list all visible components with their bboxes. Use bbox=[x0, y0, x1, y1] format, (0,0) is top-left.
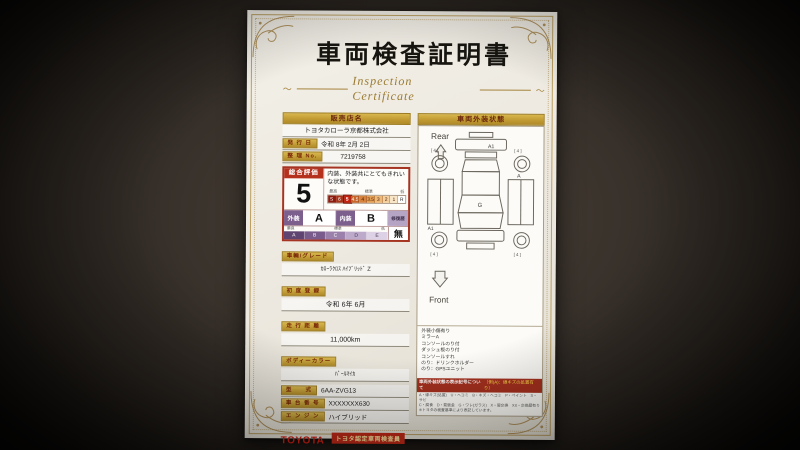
svg-text:[ 4 ]: [ 4 ] bbox=[514, 148, 521, 153]
rear-label: Rear bbox=[431, 131, 449, 141]
svg-text:A1: A1 bbox=[428, 226, 434, 232]
detail-chassis-no: 車 台 番 号 XXXXXXX630 bbox=[281, 397, 409, 411]
detail-first-registration: 初 度 登 録 令和 6年 6月 bbox=[281, 279, 409, 312]
right-column: 車両外装状態 Rear A bbox=[415, 113, 544, 450]
exterior-label: 外装 bbox=[284, 210, 303, 225]
ref-no-value: 7219758 bbox=[340, 153, 365, 160]
evaluation-scale: S 6 5 4.5 4 3.5 3 2 1 R bbox=[327, 195, 406, 204]
ornament-left: ～ bbox=[283, 82, 292, 95]
svg-text:[ 4 ]: [ 4 ] bbox=[431, 148, 438, 153]
car-diagram: Rear A1 bbox=[417, 126, 543, 326]
ref-no-label: 整 理 No. bbox=[282, 151, 322, 161]
certificate-subtitle-row: ～ Inspection Certificate ～ bbox=[283, 73, 545, 105]
repair-value: 無 bbox=[388, 227, 408, 240]
svg-text:[ 4 ]: [ 4 ] bbox=[514, 252, 521, 257]
left-column: 販売店名 トヨタカローラ京都株式会社 発 行 日 令和 8年 2月 2日 整 理… bbox=[280, 112, 410, 450]
interior-grade: B bbox=[355, 211, 388, 226]
evaluation-header: 総合評価 bbox=[284, 168, 323, 178]
grade-scale-row: 最良 標準 低 A B C D E bbox=[284, 225, 408, 240]
evaluation-comment: 内装、外装共にとてもきれいな状態です。 bbox=[327, 171, 406, 189]
exterior-panel: Rear A1 bbox=[416, 125, 545, 417]
photo-scene: 車両検査証明書 ～ Inspection Certificate ～ 販売店名 … bbox=[0, 0, 800, 450]
detail-body-color: ボディーカラー ﾊﾟｰﾙﾏｲｶ bbox=[281, 349, 409, 382]
inspector-badge: トヨタ認定車両検査員 bbox=[332, 433, 405, 444]
svg-text:A: A bbox=[517, 174, 521, 180]
legend-header-bar: 車両外装状態の表示記号について （例(A)：線キズの処置有り） bbox=[417, 378, 542, 393]
overall-evaluation-box: 総合評価 5 内装、外装共にとてもきれいな状態です。 最高 標準 低 bbox=[282, 166, 410, 242]
issue-date-label: 発 行 日 bbox=[282, 138, 317, 148]
front-label: Front bbox=[429, 295, 449, 305]
condition-notes: 外装小傷有り ミラーA コンソールのり付 ダッシュ板のり付 コンソールすれ のり… bbox=[417, 325, 542, 378]
grade-row: 外装 A 内装 B 修復歴 bbox=[284, 209, 408, 226]
dealer-header: 販売店名 bbox=[283, 112, 411, 125]
ref-no-row: 整 理 No. 7219758 bbox=[282, 150, 410, 164]
exterior-grade: A bbox=[303, 210, 336, 225]
detail-model-code: 型 式 6AA-ZVG13 bbox=[281, 384, 409, 398]
issue-date-value: 令和 8年 2月 2日 bbox=[321, 139, 370, 149]
inspection-certificate: 車両検査証明書 ～ Inspection Certificate ～ 販売店名 … bbox=[245, 10, 558, 440]
detail-engine: エ ン ジ ン ハイブリッド bbox=[281, 410, 409, 424]
repair-label: 修復歴 bbox=[388, 211, 408, 226]
ornament-right: ～ bbox=[536, 83, 545, 96]
dealer-name: トヨタカローラ京都株式会社 bbox=[283, 124, 411, 138]
certificate-title: 車両検査証明書 bbox=[283, 34, 545, 72]
inspector-block: TOYOTA トヨタ認定車両検査員 藤林 伸英 bbox=[281, 427, 409, 450]
svg-text:A1: A1 bbox=[488, 144, 495, 150]
detail-mileage: 走 行 距 離 11,000km bbox=[281, 314, 409, 347]
svg-text:[ 4 ]: [ 4 ] bbox=[430, 252, 437, 257]
evaluation-score: 5 bbox=[284, 178, 323, 209]
grade-scale: A B C D E bbox=[284, 231, 388, 240]
interior-label: 内装 bbox=[336, 211, 355, 226]
certificate-subtitle: Inspection Certificate bbox=[352, 74, 475, 105]
toyota-logo: TOYOTA bbox=[281, 435, 325, 446]
exterior-panel-header: 車両外装状態 bbox=[418, 113, 545, 126]
scale-highlight: 5 bbox=[344, 196, 352, 203]
car-outline-diagram-icon: Rear A1 bbox=[419, 128, 541, 321]
issue-date-row: 発 行 日 令和 8年 2月 2日 bbox=[282, 137, 410, 151]
svg-text:G: G bbox=[478, 203, 483, 209]
detail-grade: 車輌/グレード ｶﾛｰﾗｸﾛｽ ﾊｲﾌﾞﾘｯﾄﾞ Z bbox=[282, 244, 410, 277]
legend-symbol-key: A・線キズ(処置) U・ヘコミ B・キズ・ヘコミ P・ペイント S・サビ C・腐… bbox=[417, 392, 542, 416]
